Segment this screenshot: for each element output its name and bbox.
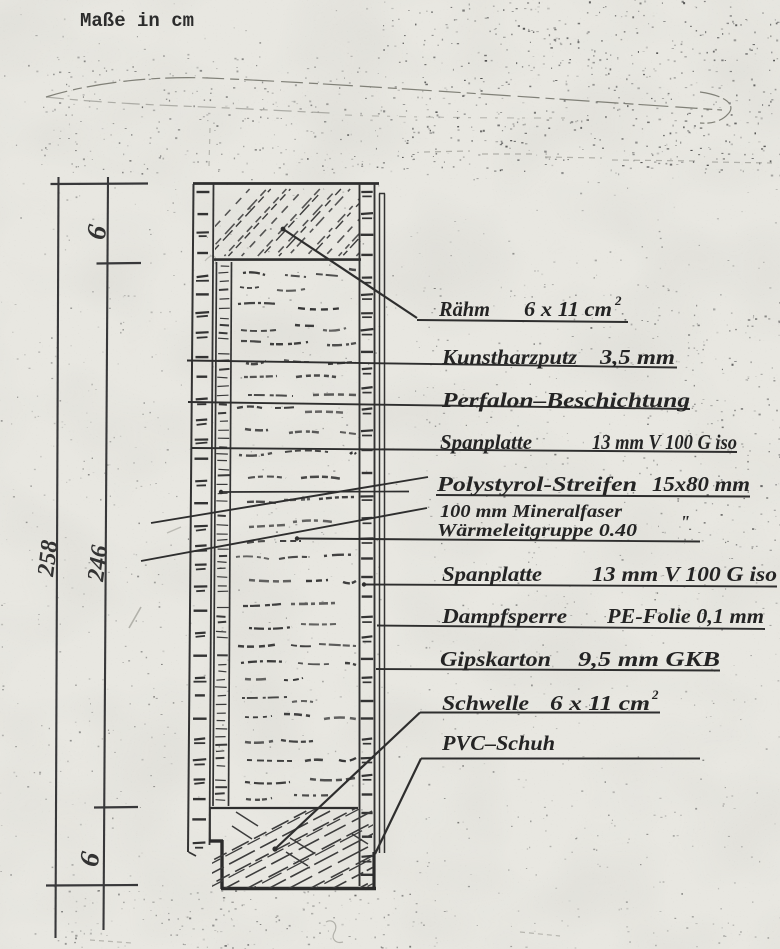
- svg-text:Polystyrol-Streifen: Polystyrol-Streifen: [436, 472, 637, 496]
- svg-text:Perfalon–Beschichtung: Perfalon–Beschichtung: [441, 388, 690, 412]
- svg-text:PE-Folie 0,1 mm: PE-Folie 0,1 mm: [606, 604, 764, 628]
- svg-text:9,5 mm GKB: 9,5 mm GKB: [578, 647, 720, 671]
- svg-text:Gipskarton: Gipskarton: [440, 647, 551, 671]
- svg-text:": ": [680, 512, 690, 532]
- svg-text:Spanplatte: Spanplatte: [442, 562, 542, 586]
- svg-text:PVC–Schuh: PVC–Schuh: [441, 731, 555, 755]
- svg-text:Kunstharzputz: Kunstharzputz: [441, 345, 578, 369]
- svg-text:Maße in cm: Maße in cm: [80, 10, 194, 32]
- svg-text:Wärmeleitgruppe 0.40: Wärmeleitgruppe 0.40: [437, 520, 637, 540]
- svg-text:Spanplatte: Spanplatte: [440, 430, 532, 454]
- svg-text:13 mm V 100 G iso: 13 mm V 100 G iso: [592, 430, 737, 454]
- svg-text:Dampfsperre: Dampfsperre: [441, 604, 567, 628]
- svg-text:3,5 mm: 3,5 mm: [599, 345, 675, 369]
- svg-text:2: 2: [614, 293, 622, 308]
- svg-text:Rähm: Rähm: [438, 297, 490, 321]
- svg-text:2: 2: [651, 687, 659, 702]
- svg-text:Schwelle: Schwelle: [442, 691, 529, 715]
- svg-text:246: 246: [83, 544, 113, 584]
- svg-text:100 mm Mineralfaser: 100 mm Mineralfaser: [440, 501, 623, 521]
- svg-text:13 mm V 100 G iso: 13 mm V 100 G iso: [592, 562, 777, 586]
- svg-text:6 x 11 cm: 6 x 11 cm: [550, 691, 650, 715]
- svg-text:6 x 11 cm: 6 x 11 cm: [524, 297, 612, 321]
- svg-text:15x80 mm: 15x80 mm: [652, 472, 750, 496]
- svg-text:258: 258: [33, 539, 63, 579]
